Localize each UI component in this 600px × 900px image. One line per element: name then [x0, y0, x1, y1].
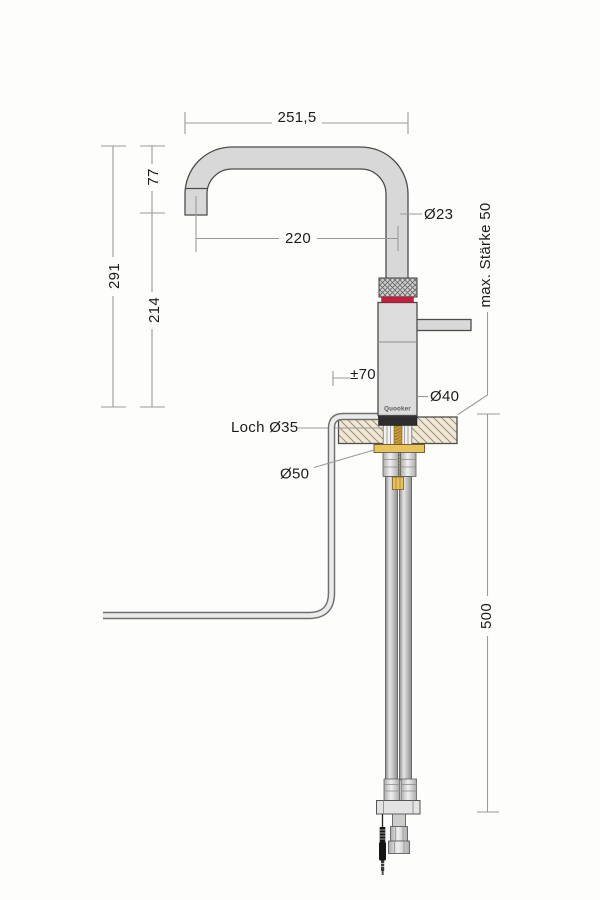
cable-plug-body — [379, 842, 386, 861]
jack-point — [382, 871, 384, 875]
bottom-coupling — [391, 827, 408, 842]
faucet-body-group: Quooker — [185, 147, 471, 426]
max-thickness-label: max. Stärke 50 — [477, 202, 494, 307]
body-diameter-label: Ø40 — [430, 388, 459, 405]
mixer-body — [378, 303, 417, 416]
cable-jack-tip — [381, 861, 384, 872]
base-gasket — [379, 415, 418, 426]
dim-under-counter-label: 500 — [478, 603, 495, 629]
faucet-dimension-diagram: Quooker 251,5 220 291 77 214 Ø23 max. St… — [0, 0, 600, 900]
dim-body-height-label: 214 — [146, 297, 163, 323]
flexible-hose — [103, 417, 378, 616]
brass-flange — [374, 445, 425, 453]
dim-top-width-label: 251,5 — [277, 109, 316, 126]
flange-diameter-label: Ø50 — [280, 466, 309, 483]
countertop-left-slab — [339, 417, 384, 444]
dim-reach-label: 220 — [285, 230, 311, 247]
brand-logo: Quooker — [384, 406, 411, 413]
hose-outer — [103, 417, 378, 616]
cross-block — [377, 801, 421, 815]
left-bottom-coupling — [384, 779, 400, 801]
spout-tube — [185, 147, 408, 280]
bottom-hex-nut — [389, 841, 410, 854]
knurled-ring — [379, 278, 417, 297]
cable-ribbed-section — [380, 827, 386, 842]
bottom-neck — [393, 814, 406, 827]
hose-inner — [103, 417, 378, 616]
technical-drawing-page: Quooker 251,5 220 291 77 214 Ø23 max. St… — [0, 0, 600, 900]
flange-leader-line — [314, 450, 374, 468]
dim-total-height-label: 291 — [106, 263, 123, 289]
under-counter-assembly — [374, 445, 425, 854]
dimension-annotations: 251,5 220 291 77 214 Ø23 max. Stärke 50 … — [101, 109, 500, 812]
spout-diameter-label: Ø23 — [424, 206, 453, 223]
red-indicator-ring — [382, 297, 414, 303]
right-bottom-coupling — [401, 779, 417, 801]
left-fitting-nut — [383, 453, 399, 477]
sensor-cable — [379, 814, 386, 875]
handle-range-label: ±70 — [350, 366, 376, 383]
right-pipe — [400, 477, 412, 781]
right-fitting-nut — [401, 453, 417, 477]
dim-spout-drop-label: 77 — [145, 168, 162, 185]
left-pipe — [386, 477, 398, 781]
handle-lever — [417, 320, 472, 331]
brass-stud-nut — [393, 477, 404, 490]
countertop-right-slab — [412, 417, 458, 444]
hole-label: Loch Ø35 — [231, 419, 298, 436]
